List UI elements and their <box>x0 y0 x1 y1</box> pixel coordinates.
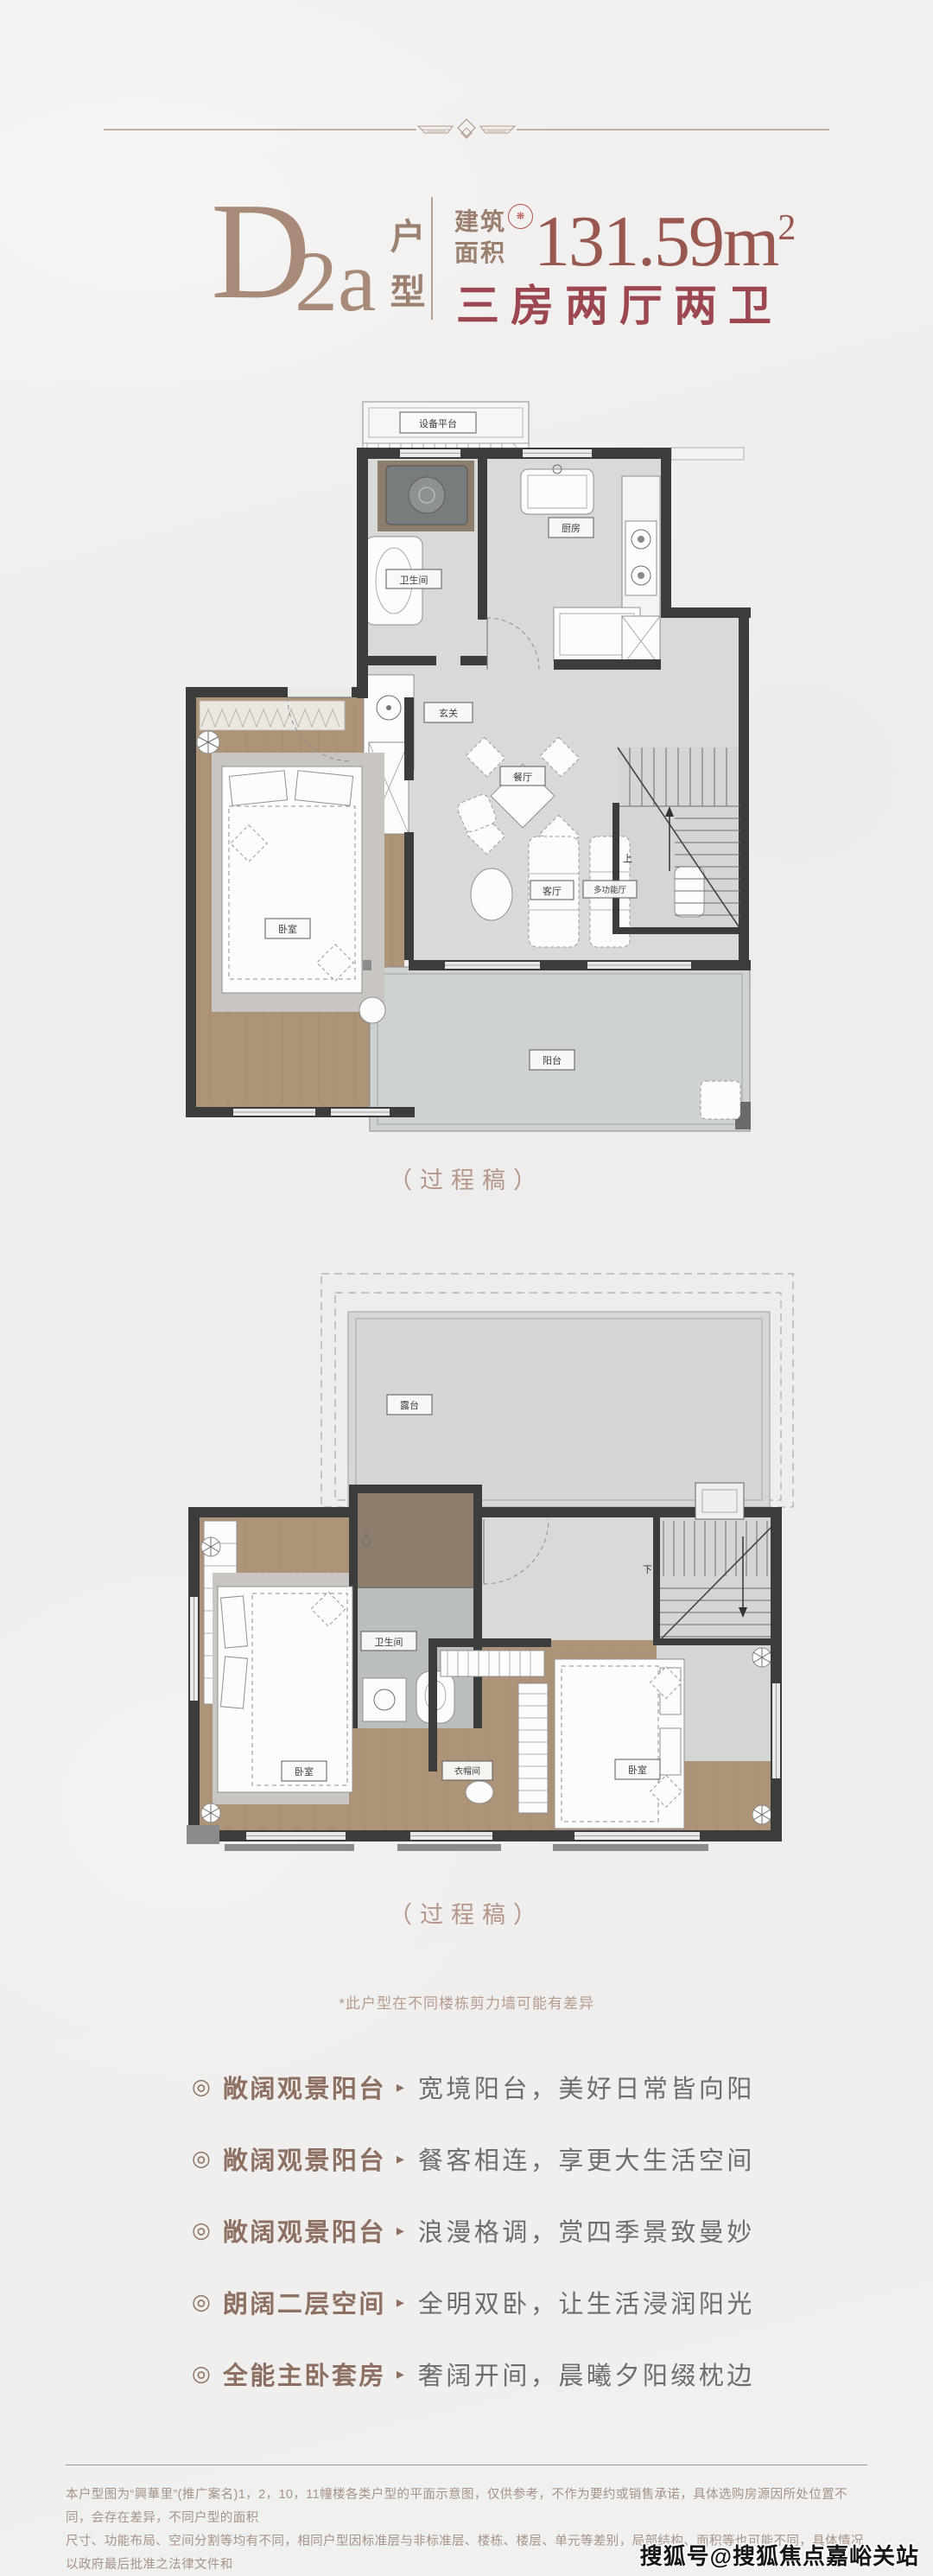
room-label-bathroom-2f: 卫生间 <box>375 1636 403 1648</box>
side-table <box>675 867 704 917</box>
feature-desc: 宽境阳台，美好日常皆向阳 <box>418 2069 755 2105</box>
double-circle-bullet-icon: ◎ <box>192 2220 211 2242</box>
right-triangle-arrow-icon: ▸ <box>397 2078 404 2096</box>
room-label-balcony: 阳台 <box>543 1054 562 1066</box>
diamond-ornament-divider <box>104 118 829 142</box>
balcony <box>370 967 751 1131</box>
coffee-table <box>471 868 512 920</box>
disclaimer-line: 本户型图为“興華里”(推广案名)1，2，10，11幢楼各类户型的平面示意图，仅供… <box>66 2484 871 2530</box>
feature-label: 敞阔观景阳台 <box>223 2069 386 2105</box>
double-circle-bullet-icon: ◎ <box>192 2077 211 2098</box>
closet-stool <box>466 1781 493 1803</box>
ac-window-box <box>695 1483 744 1519</box>
double-circle-bullet-icon: ◎ <box>192 2292 211 2313</box>
right-triangle-arrow-icon: ▸ <box>397 2365 404 2383</box>
double-circle-bullet-icon: ◎ <box>192 2363 211 2385</box>
room-label-bedroom-left: 卧室 <box>295 1765 314 1778</box>
feature-desc: 奢阔开间，晨曦夕阳缀枕边 <box>418 2356 755 2392</box>
double-circle-bullet-icon: ◎ <box>192 2148 211 2170</box>
feature-label: 敞阔观景阳台 <box>223 2212 386 2248</box>
room-label-foyer: 玄关 <box>439 707 458 719</box>
room-label-living: 客厅 <box>543 885 562 897</box>
room-label-bathroom-1f: 卫生间 <box>400 574 428 586</box>
room-label-dining: 餐厅 <box>513 771 532 783</box>
right-triangle-arrow-icon: ▸ <box>397 2222 404 2240</box>
feature-desc: 全明双卧，让生活浸润阳光 <box>418 2284 755 2320</box>
header-divider-line <box>431 197 433 320</box>
feature-label: 朗阔二层空间 <box>223 2284 386 2320</box>
feature-list: ◎ 敞阔观景阳台 ▸ 宽境阳台，美好日常皆向阳 ◎ 敞阔观景阳台 ▸ 餐客相连，… <box>192 2070 755 2429</box>
area-label: 建筑 面积 <box>454 207 506 270</box>
red-seal-stamp-icon: ❋ <box>508 204 533 229</box>
right-triangle-arrow-icon: ▸ <box>397 2293 404 2312</box>
floor-plan-level-1: 设备平台 <box>186 400 760 1135</box>
feature-item: ◎ 朗阔二层空间 ▸ 全明双卧，让生活浸润阳光 <box>192 2286 755 2318</box>
room-count-text: 三房两厅两卫 <box>456 282 783 330</box>
sink-2f <box>363 1678 406 1721</box>
plan2-caption: （过程稿） <box>0 1896 933 1930</box>
promo-page: D 2a 户 型 建筑 面积 ❋ 131.59m2 三房两厅两卫 设备平台 <box>0 0 933 2576</box>
room-label-multi: 多功能厅 <box>593 885 627 895</box>
footer-divider <box>66 2465 867 2465</box>
feature-label: 全能主卧套房 <box>223 2356 386 2392</box>
kitchen-sink <box>521 469 593 514</box>
feature-item: ◎ 全能主卧套房 ▸ 奢阔开间，晨曦夕阳缀枕边 <box>192 2357 755 2390</box>
room-label-kitchen: 厨房 <box>562 523 581 534</box>
bathroom-2f <box>349 1485 482 1728</box>
stairs-up-label: 上 <box>623 853 632 864</box>
room-label-terrace: 露台 <box>400 1399 419 1411</box>
room-label-equipment: 设备平台 <box>419 417 457 429</box>
room-label-bedroom-1f: 卧室 <box>278 923 297 935</box>
curtain <box>200 701 345 730</box>
area-value: 131.59m2 <box>534 188 796 282</box>
plan1-caption: （过程稿） <box>0 1161 933 1195</box>
feature-desc: 餐客相连，享更大生活空间 <box>418 2140 755 2177</box>
terrace <box>321 1274 793 1507</box>
right-triangle-arrow-icon: ▸ <box>397 2150 404 2168</box>
room-label-bedroom-right: 卧室 <box>628 1764 647 1776</box>
unit-type-suffix: 2a <box>295 239 376 325</box>
floor-plan-level-2: 下 露台 卫生间 衣帽间 <box>138 1269 795 1943</box>
feature-item: ◎ 敞阔观景阳台 ▸ 餐客相连，享更大生活空间 <box>192 2142 755 2175</box>
feature-item: ◎ 敞阔观景阳台 ▸ 浪漫格调，赏四季景致曼妙 <box>192 2214 755 2247</box>
feature-label: 敞阔观景阳台 <box>223 2140 386 2177</box>
unit-type-word: 户 型 <box>390 209 426 320</box>
ottoman <box>359 997 385 1023</box>
sohu-watermark: 搜狐号@搜狐焦点嘉峪关站 <box>640 2539 919 2571</box>
stove <box>625 521 657 595</box>
feature-desc: 浪漫格调，赏四季景致曼妙 <box>418 2212 755 2248</box>
stairs-down-label: 下 <box>643 1565 652 1575</box>
feature-item: ◎ 敞阔观景阳台 ▸ 宽境阳台，美好日常皆向阳 <box>192 2070 755 2103</box>
room-label-closet: 衣帽间 <box>454 1765 480 1777</box>
shear-wall-note: *此户型在不同楼栋剪力墙可能有差异 <box>0 1991 594 2013</box>
